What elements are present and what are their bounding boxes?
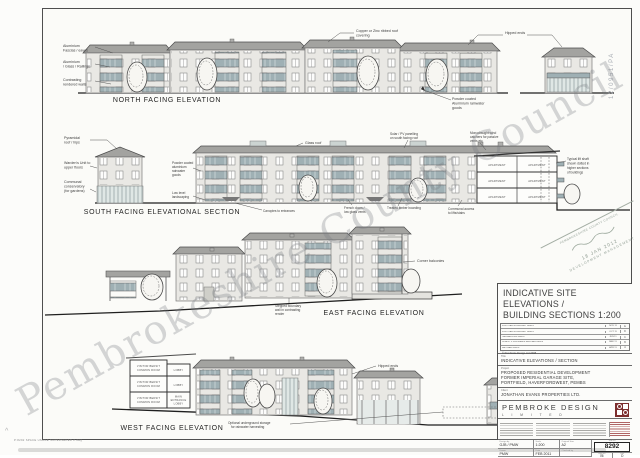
label-line: Typical lift shaft bbox=[567, 157, 589, 161]
entrance-cell-line: MAIN bbox=[175, 395, 182, 399]
label-line: Pyramidal bbox=[64, 136, 80, 140]
north-elevation-title: NORTH FACING ELEVATION bbox=[113, 97, 221, 104]
address-microtext bbox=[536, 423, 569, 436]
apartment-cell-label: APARTMENT bbox=[488, 179, 506, 183]
logo-shape bbox=[617, 410, 622, 415]
sheet-heading-line1: INDICATIVE SITE ELEVATIONS / bbox=[503, 288, 632, 310]
south-label-canopies: Canopies to entrances bbox=[235, 203, 295, 213]
pembroke-design-logo bbox=[615, 403, 629, 417]
north-elevation: Aluminium Fascias / eaves Aluminium / Gl… bbox=[63, 29, 614, 110]
label-line: to lifts/stairs bbox=[448, 211, 465, 215]
sheet-heading: INDICATIVE SITE ELEVATIONS / BUILDING SE… bbox=[498, 284, 632, 322]
drawing-sheet: Aluminium Fascias / eaves Aluminium / Gl… bbox=[0, 0, 640, 455]
label-line: Treated timber boarding bbox=[387, 206, 421, 210]
drawing-info-table: Design by GJB / PMW Scale 1:200 Original… bbox=[498, 439, 632, 457]
east-block-2 bbox=[173, 247, 245, 301]
label-line: roof / hips bbox=[64, 141, 80, 145]
east-label-stepped-wall: Stepped boundary wall in contrasting ren… bbox=[275, 298, 301, 316]
west-elevation: VISITOR BEDSIT COMMON ROOM VISITOR BEDSI… bbox=[112, 354, 556, 432]
firm-row: PEMBROKE DESIGN L I M I T E D bbox=[498, 400, 632, 418]
label-line: goods bbox=[452, 106, 462, 110]
bedsit-cell-line: COMMON ROOM bbox=[137, 400, 160, 404]
logo-shape bbox=[623, 404, 628, 409]
south-elevation-section: APARTMENT APARTMENT APARTMENT APARTMENT … bbox=[64, 131, 630, 216]
west-elevation-title: WEST FACING ELEVATION bbox=[121, 425, 224, 432]
label-line: Corner balconies bbox=[417, 259, 444, 263]
label-line: shown dotted in bbox=[567, 162, 590, 166]
label-line: Warden's Unit to bbox=[64, 161, 90, 165]
logo-shape bbox=[617, 404, 622, 409]
east-label-corner-balconies: Corner balconies bbox=[403, 259, 444, 263]
label-line: Copper or Zinc ribbed roof bbox=[356, 29, 398, 33]
client-value: JONATHAN EVANS PROPERTIES LTD. bbox=[501, 392, 629, 397]
label-line: vents etc bbox=[470, 139, 483, 143]
project-row: Project PROPOSED RESIDENTIAL DEVELOPMENT… bbox=[498, 365, 632, 387]
bedsit-cell-line: VISITOR BEDSIT bbox=[137, 396, 160, 400]
label-line: Hipped ends bbox=[505, 31, 525, 35]
client-row: Client JONATHAN EVANS PROPERTIES LTD. bbox=[498, 387, 632, 400]
west-section-cells: VISITOR BEDSIT COMMON ROOM VISITOR BEDSI… bbox=[130, 360, 190, 408]
firm-subtitle: L I M I T E D bbox=[502, 413, 599, 417]
south-label-wardens: Warden's Unit to upper floors bbox=[64, 161, 97, 170]
bedsit-cell-line: VISITOR BEDSIT bbox=[137, 380, 160, 384]
label-line: on south facing roof bbox=[390, 136, 418, 140]
label-line: conservatory bbox=[64, 185, 85, 189]
job-number-value: 8292 bbox=[594, 442, 630, 452]
firm-name: PEMBROKE DESIGN bbox=[502, 403, 599, 412]
entrance-cell-line: LOBBY bbox=[174, 402, 184, 406]
scan-mark: ^ bbox=[5, 428, 8, 435]
label-line: Aluminium rainwater bbox=[452, 102, 485, 106]
label-line: Aluminium bbox=[63, 44, 80, 48]
revision-table-section: FURTHER BOUNDARY AMDS NOV 11 E FURTHER B… bbox=[498, 322, 632, 353]
address-microtext bbox=[500, 423, 533, 436]
label-line: Fascias / eaves bbox=[63, 49, 88, 53]
east-elevation: Corner balconies Stepped boundary wall i… bbox=[45, 227, 462, 317]
label-line: higher sections bbox=[567, 166, 589, 170]
bedsit-cell-line: VISITOR BEDSIT bbox=[137, 364, 160, 368]
south-label-pyramidal: Pyramidal roof / hips bbox=[64, 136, 117, 149]
job-number-column: Job No 8292 Dwg No 06 Rev D bbox=[592, 440, 632, 457]
bedsit-cell-line: COMMON ROOM bbox=[137, 384, 160, 388]
file-path-note: P:8292 SPACE USAGE SUPERSEDED 2.dwg bbox=[14, 438, 82, 442]
east-canopy-block bbox=[106, 271, 170, 301]
label-line: goods bbox=[172, 173, 181, 177]
apartment-cell-label: APARTMENT bbox=[528, 195, 546, 199]
drawn-cell: Drawn PMW bbox=[498, 449, 534, 457]
lobby-cell-label: LOBBY bbox=[174, 383, 184, 387]
drawing-title-row: Title INDICATIVE ELEVATIONS / SECTION bbox=[498, 353, 632, 365]
job-number-cell: Job No 8292 bbox=[592, 440, 632, 452]
sheet-heading-line2: BUILDING SECTIONS 1:200 bbox=[503, 310, 632, 321]
drawing-title-value: INDICATIVE ELEVATIONS / SECTION bbox=[501, 358, 629, 363]
lobby-cell-label: LOBBY bbox=[174, 368, 184, 372]
apartment-cell-label: APARTMENT bbox=[488, 195, 506, 199]
label-line: rendered walls bbox=[63, 83, 87, 87]
label-line: Contrasting bbox=[63, 78, 81, 82]
south-wardens-building bbox=[95, 147, 145, 203]
project-line: PORTFIELD, HAVERFORDWEST, PEMBS bbox=[501, 380, 629, 385]
checked-cell: Checked by bbox=[560, 449, 592, 457]
label-line: upper floors bbox=[64, 166, 83, 170]
apartment-cell-label: APARTMENT bbox=[528, 163, 546, 167]
label-line: of buildings bbox=[567, 171, 584, 175]
label-line: covering bbox=[356, 34, 370, 38]
bedsit-cell-line: COMMON ROOM bbox=[137, 368, 160, 372]
accreditation-microtext bbox=[609, 422, 630, 437]
label-line: Glass roof bbox=[305, 141, 321, 145]
east-block-4 bbox=[349, 227, 420, 294]
size-cell: Original Size A2 bbox=[560, 440, 592, 449]
dwg-number-cell: Dwg No 06 bbox=[592, 453, 613, 458]
south-label-conservatory: Communal conservatory (for gardens) bbox=[64, 180, 96, 193]
entrance-cell-line: ENTRANCE bbox=[171, 398, 187, 402]
south-label-glassroof: Glass roof bbox=[296, 141, 321, 146]
label-line: render bbox=[275, 312, 285, 316]
design-by-cell: Design by GJB / PMW bbox=[498, 440, 534, 449]
logo-shape bbox=[623, 410, 628, 415]
label-line: Hipped ends bbox=[378, 364, 398, 368]
revision-table: FURTHER BOUNDARY AMDS NOV 11 E FURTHER B… bbox=[500, 323, 630, 351]
label-line: / Glass / Railings bbox=[63, 65, 90, 69]
label-line: landscaping bbox=[172, 195, 189, 199]
label-line: Aluminium bbox=[63, 60, 80, 64]
date-cell: Date FEB 2011 bbox=[534, 449, 560, 457]
label-line: Communal bbox=[64, 180, 82, 184]
planning-reference-number: 12/0951/PA bbox=[609, 15, 615, 99]
label-line: Canopies to entrances bbox=[263, 209, 295, 213]
label-line: (for gardens) bbox=[64, 189, 85, 193]
apartment-cell-label: APARTMENT bbox=[528, 179, 546, 183]
title-block: INDICATIVE SITE ELEVATIONS / BUILDING SE… bbox=[497, 283, 632, 440]
firm-names: PEMBROKE DESIGN L I M I T E D bbox=[502, 403, 599, 417]
south-section-cut: APARTMENT APARTMENT APARTMENT APARTMENT … bbox=[474, 151, 580, 204]
apartment-cell-label: APARTMENT bbox=[488, 163, 506, 167]
west-main-building bbox=[193, 360, 355, 415]
revision-cell: Rev D bbox=[613, 453, 633, 458]
revision-row: REVISED AMDS APR 11 A bbox=[501, 346, 629, 350]
info-grid: Design by GJB / PMW Scale 1:200 Original… bbox=[498, 440, 592, 457]
firm-address-strip bbox=[498, 418, 632, 439]
dwg-rev-row: Dwg No 06 Rev D bbox=[592, 452, 632, 458]
label-line: low glass vents bbox=[344, 210, 366, 214]
label-line: for rainwater harvesting bbox=[231, 425, 265, 429]
north-detached-building bbox=[542, 48, 595, 93]
address-microtext bbox=[573, 423, 606, 436]
label-line: Powder coated bbox=[452, 97, 476, 101]
scale-cell: Scale 1:200 bbox=[534, 440, 560, 449]
east-block-3 bbox=[242, 233, 355, 298]
south-elevation-title: SOUTH FACING ELEVATIONAL SECTION bbox=[84, 209, 240, 216]
east-elevation-title: EAST FACING ELEVATION bbox=[323, 310, 424, 317]
